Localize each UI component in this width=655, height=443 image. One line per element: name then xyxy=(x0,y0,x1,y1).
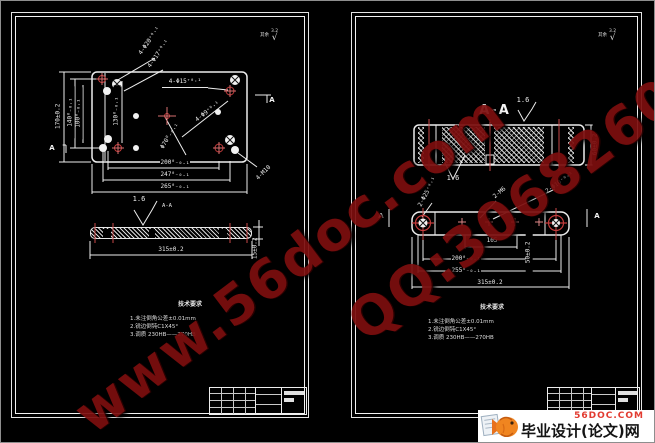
surplus-text: 其余 xyxy=(598,32,607,38)
finish-value: 1.6 xyxy=(126,196,152,204)
dim-247: 247⁰₋₀.₁ xyxy=(160,171,191,178)
dim-200: 200⁰₋₀.₁ xyxy=(160,159,191,166)
notes-title: 技术要求 xyxy=(466,302,518,311)
surface-roughness-corner: 其余 3.2 √ xyxy=(598,29,616,42)
logo-title-text: 毕业设计(论文)网 xyxy=(521,420,654,441)
finish-value: 1.6 xyxy=(510,97,536,105)
dim-265: 265⁰₋₀.₁ xyxy=(160,183,191,190)
note-line: 1.未注倒角公差±0.01mm xyxy=(428,317,558,325)
dim-140: 140⁰₋₀.₁ xyxy=(68,86,75,138)
dim-315: 315±0.2 xyxy=(157,246,184,253)
dim-315: 315±0.2 xyxy=(476,279,503,286)
cut-mark-a: A xyxy=(46,144,58,152)
roughness-symbol: 3.2 √ xyxy=(271,29,278,42)
note-line: 2.锐边倒钝C1X45° xyxy=(428,325,558,333)
fish-logo-icon xyxy=(490,412,520,442)
dim-100: 100⁰₋₀.₁ xyxy=(76,87,83,139)
cut-mark-a: A xyxy=(591,212,603,220)
surface-roughness-corner: 其余 3.2 √ xyxy=(260,29,278,42)
callout-4xd15: 4-Φ15⁺⁰·¹ xyxy=(162,79,208,88)
cad-viewer-canvas: 4-Φ20⁺⁰·¹ 4-Φ17⁺⁰·¹ 4-Φ15⁺⁰·¹ 4-Φ9⁺⁰·¹ Φ… xyxy=(0,0,655,443)
dim-170: 170±0.2 xyxy=(56,85,63,147)
roughness-symbol: 3.2 √ xyxy=(609,29,616,42)
note-line: 3.调质 230HB——270HB xyxy=(428,333,558,341)
surplus-text: 其余 xyxy=(260,32,269,38)
section-label: A-A xyxy=(155,203,179,209)
check-icon: √ xyxy=(271,34,278,42)
check-icon: √ xyxy=(609,34,616,42)
dim-130: 130⁰₋₀.₁ xyxy=(114,85,121,137)
cut-mark-a: A xyxy=(266,96,278,104)
